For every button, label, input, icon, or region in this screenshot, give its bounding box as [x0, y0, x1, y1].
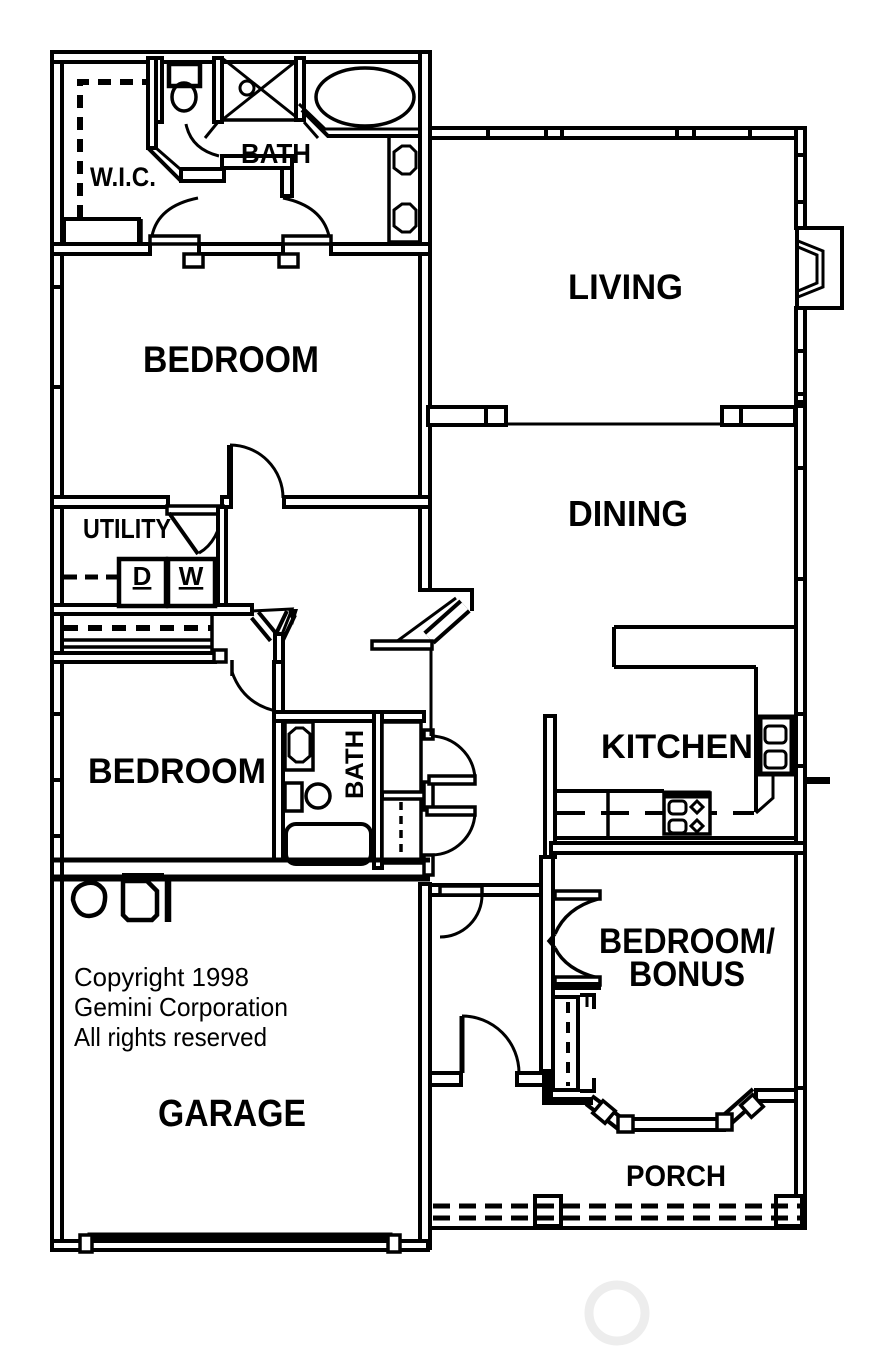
svg-text:BATH: BATH	[241, 138, 311, 169]
svg-text:DINING: DINING	[568, 493, 688, 534]
svg-text:W.I.C.: W.I.C.	[90, 162, 156, 192]
svg-text:PORCH: PORCH	[626, 1160, 726, 1193]
svg-text:KITCHEN: KITCHEN	[601, 728, 753, 766]
svg-text:BONUS: BONUS	[629, 955, 745, 994]
svg-text:D: D	[133, 561, 152, 591]
svg-text:UTILITY: UTILITY	[83, 513, 171, 544]
svg-text:BEDROOM: BEDROOM	[88, 752, 266, 791]
svg-text:W: W	[179, 561, 204, 591]
svg-text:LIVING: LIVING	[568, 268, 683, 307]
svg-text:Gemini Corporation: Gemini Corporation	[74, 992, 288, 1022]
svg-text:GARAGE: GARAGE	[158, 1093, 306, 1135]
svg-text:All rights reserved: All rights reserved	[74, 1022, 267, 1052]
svg-text:BATH: BATH	[341, 730, 369, 799]
svg-text:BEDROOM: BEDROOM	[143, 339, 319, 380]
svg-text:Copyright 1998: Copyright 1998	[74, 962, 249, 992]
